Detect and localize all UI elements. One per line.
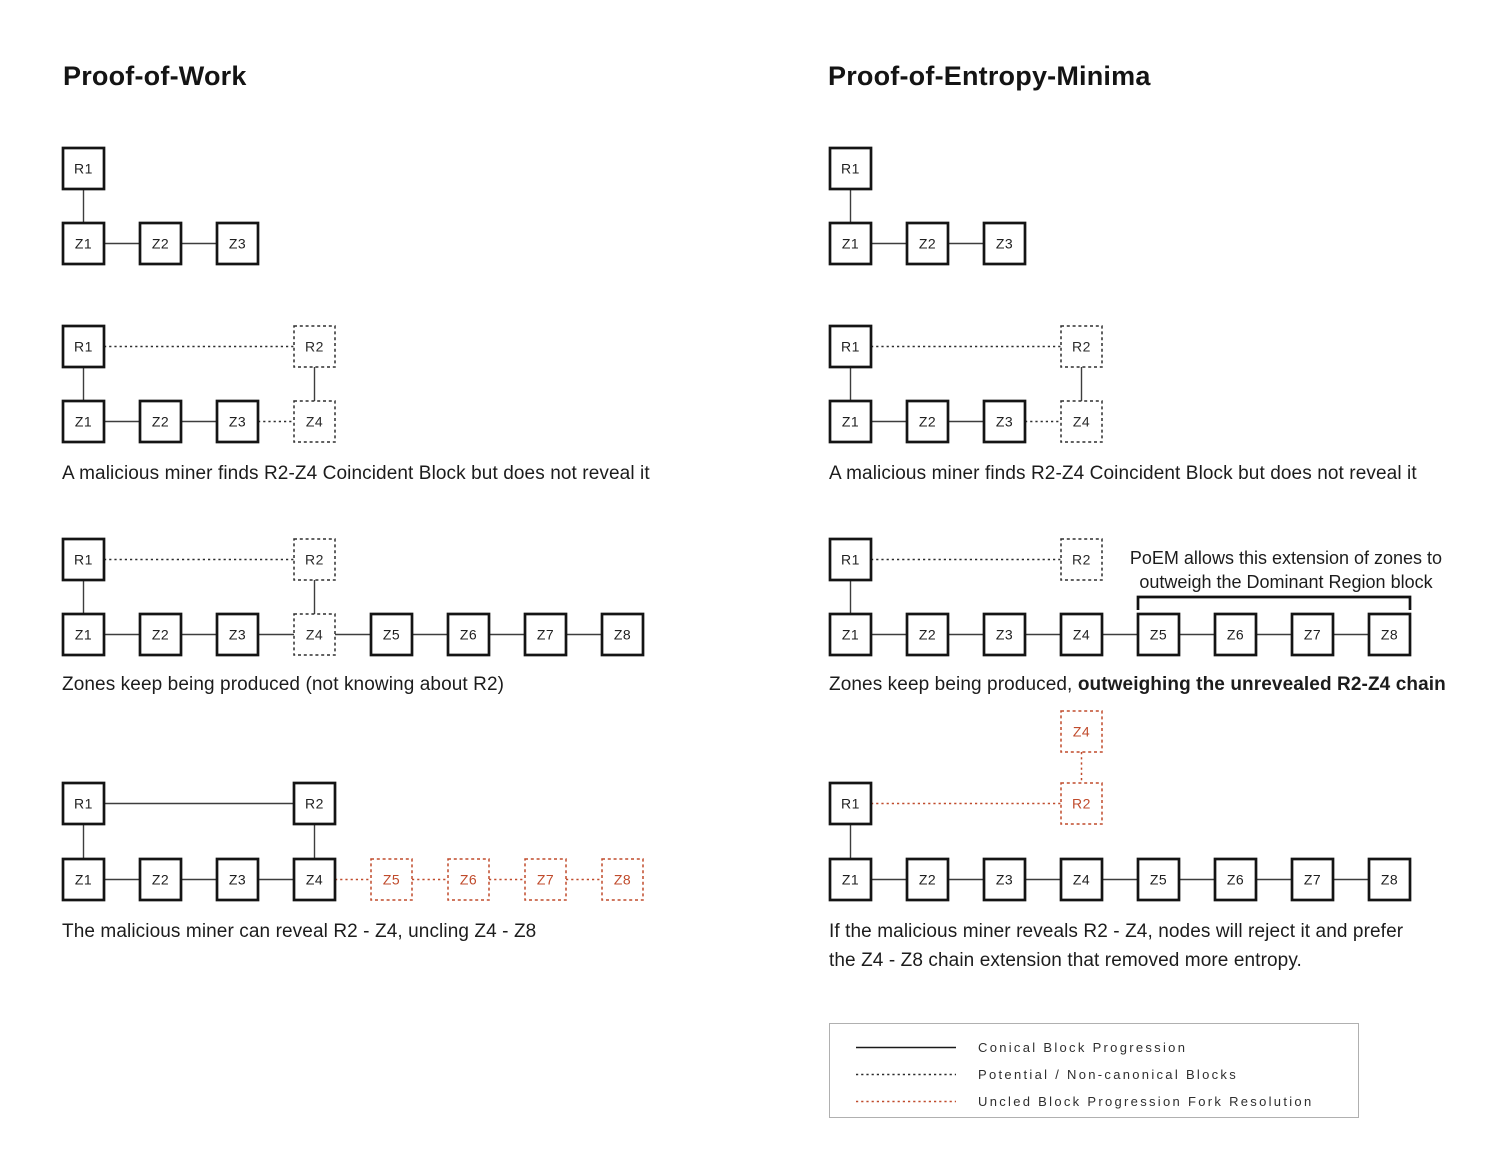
block-label-R2: R2: [1072, 552, 1091, 568]
block-label-Z1: Z1: [842, 414, 859, 430]
legend-label-canonical: Conical Block Progression: [978, 1040, 1187, 1055]
legend-label-uncled: Uncled Block Progression Fork Resolution: [978, 1094, 1314, 1109]
block-label-R2: R2: [305, 339, 324, 355]
poem-caption-zones-normal-text: Zones keep being produced,: [829, 674, 1078, 695]
legend-sample-svg: [856, 1061, 956, 1088]
block-label-Z4: Z4: [1073, 872, 1090, 888]
block-label-Z2: Z2: [919, 414, 936, 430]
block-label-Z1: Z1: [75, 627, 92, 643]
block-label-Z5: Z5: [383, 627, 400, 643]
block-label-R2: R2: [305, 796, 324, 812]
diagram-pow-zones-produced: R1R2Z1Z2Z3Z4Z5Z6Z7Z8: [63, 539, 643, 655]
diagram-poem-hidden-coincident: R1R2Z1Z2Z3Z4: [830, 326, 1102, 442]
block-label-R2: R2: [305, 552, 324, 568]
block-label-Z4: Z4: [306, 414, 323, 430]
block-label-Z1: Z1: [842, 627, 859, 643]
block-label-Z5: Z5: [1150, 872, 1167, 888]
block-label-Z2: Z2: [919, 236, 936, 252]
page-canvas: R1Z1Z2Z3R1R2Z1Z2Z3Z4R1R2Z1Z2Z3Z4Z5Z6Z7Z8…: [0, 0, 1500, 1176]
block-label-Z8: Z8: [614, 627, 631, 643]
block-label-R1: R1: [841, 161, 860, 177]
block-label-Z4u: Z4: [1073, 724, 1090, 740]
diagram-poem-reject-reveal: Z4R2R1Z1Z2Z3Z4Z5Z6Z7Z8: [830, 711, 1410, 900]
legend-row-potential: Potential / Non-canonical Blocks: [830, 1061, 1358, 1088]
block-label-Z6: Z6: [460, 872, 477, 888]
block-label-R1: R1: [841, 796, 860, 812]
poem-caption-zones-outweigh: Zones keep being produced, outweighing t…: [829, 670, 1446, 699]
block-label-Z1: Z1: [75, 872, 92, 888]
block-label-Z6: Z6: [1227, 627, 1244, 643]
block-label-R1: R1: [74, 796, 93, 812]
legend-line-dotted-black: [856, 1061, 956, 1088]
block-label-Z5: Z5: [383, 872, 400, 888]
legend-sample-svg: [856, 1088, 956, 1115]
block-label-Z6: Z6: [460, 627, 477, 643]
block-label-Z4: Z4: [1073, 627, 1090, 643]
legend-label-potential: Potential / Non-canonical Blocks: [978, 1067, 1238, 1082]
legend-row-canonical: Conical Block Progression: [830, 1034, 1358, 1061]
block-label-Z3: Z3: [996, 872, 1013, 888]
block-label-R1: R1: [74, 339, 93, 355]
block-label-Z3: Z3: [229, 236, 246, 252]
extension-bracket: [1138, 597, 1410, 610]
block-label-Z1: Z1: [842, 872, 859, 888]
right-column-title: Proof-of-Entropy-Minima: [828, 61, 1151, 92]
block-label-R1: R1: [74, 552, 93, 568]
block-label-Z4: Z4: [1073, 414, 1090, 430]
block-label-Z2: Z2: [152, 872, 169, 888]
pow-caption-zones-produced: Zones keep being produced (not knowing a…: [62, 670, 504, 699]
left-column-title: Proof-of-Work: [63, 61, 247, 92]
block-label-Z3: Z3: [229, 414, 246, 430]
diagram-poem-genesis: R1Z1Z2Z3: [830, 148, 1025, 264]
block-label-Z2: Z2: [152, 627, 169, 643]
block-label-Z3: Z3: [229, 627, 246, 643]
block-label-Z3: Z3: [996, 236, 1013, 252]
block-label-Z7: Z7: [537, 627, 554, 643]
block-label-R1: R1: [841, 552, 860, 568]
block-label-Z3: Z3: [996, 627, 1013, 643]
block-label-Z8: Z8: [1381, 627, 1398, 643]
block-label-Z1: Z1: [842, 236, 859, 252]
poem-extension-annotation: PoEM allows this extension of zones to o…: [1125, 546, 1447, 594]
block-label-Z5: Z5: [1150, 627, 1167, 643]
block-label-Z1: Z1: [75, 414, 92, 430]
legend-line-dotted-red: [856, 1088, 956, 1115]
block-label-R2: R2: [1072, 796, 1091, 812]
block-label-Z8: Z8: [1381, 872, 1398, 888]
legend-row-uncled: Uncled Block Progression Fork Resolution: [830, 1088, 1358, 1115]
block-label-Z7: Z7: [537, 872, 554, 888]
poem-caption-reject-reveal: If the malicious miner reveals R2 - Z4, …: [829, 917, 1403, 975]
legend-line-solid-black: [856, 1034, 956, 1061]
block-label-Z3: Z3: [229, 872, 246, 888]
block-label-Z3: Z3: [996, 414, 1013, 430]
legend-box: Conical Block Progression Potential / No…: [829, 1023, 1359, 1118]
block-label-Z4: Z4: [306, 627, 323, 643]
poem-caption-zones-bold-text: outweighing the unrevealed R2-Z4 chain: [1078, 674, 1446, 695]
block-label-Z2: Z2: [152, 414, 169, 430]
diagram-pow-reveal-uncle: R1R2Z1Z2Z3Z4Z5Z6Z7Z8: [63, 783, 643, 900]
block-label-Z2: Z2: [919, 627, 936, 643]
block-label-Z1: Z1: [75, 236, 92, 252]
block-label-Z7: Z7: [1304, 627, 1321, 643]
block-label-R1: R1: [74, 161, 93, 177]
diagram-pow-hidden-coincident: R1R2Z1Z2Z3Z4: [63, 326, 335, 442]
block-label-Z2: Z2: [152, 236, 169, 252]
block-label-R2: R2: [1072, 339, 1091, 355]
block-label-R1: R1: [841, 339, 860, 355]
poem-caption-hidden-block: A malicious miner finds R2-Z4 Coincident…: [829, 459, 1417, 488]
diagram-pow-genesis: R1Z1Z2Z3: [63, 148, 258, 264]
block-label-Z4: Z4: [306, 872, 323, 888]
block-label-Z8: Z8: [614, 872, 631, 888]
pow-caption-reveal-uncle: The malicious miner can reveal R2 - Z4, …: [62, 917, 536, 946]
pow-caption-hidden-block: A malicious miner finds R2-Z4 Coincident…: [62, 459, 650, 488]
legend-sample-svg: [856, 1034, 956, 1061]
block-label-Z7: Z7: [1304, 872, 1321, 888]
block-label-Z2: Z2: [919, 872, 936, 888]
block-label-Z6: Z6: [1227, 872, 1244, 888]
